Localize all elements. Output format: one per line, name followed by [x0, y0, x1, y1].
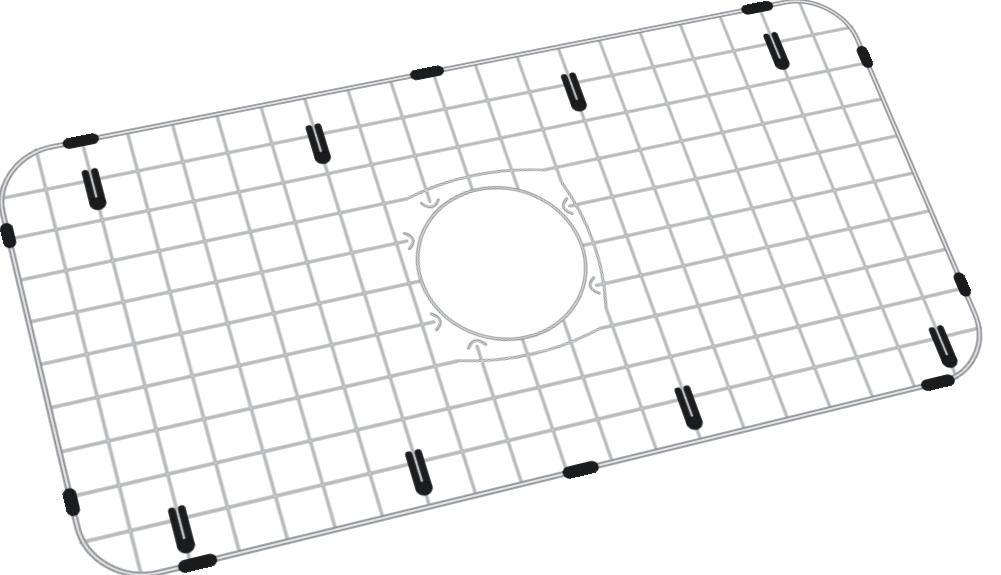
edge-bumper [177, 553, 218, 574]
sink-grid [0, 0, 998, 575]
edge-bumper [952, 272, 972, 298]
sink-grid-svg [0, 0, 998, 575]
edge-bumper [62, 133, 100, 150]
edge-bumper [920, 374, 956, 392]
outer-frame-highlight [0, 0, 998, 575]
edge-bumper [740, 0, 774, 15]
product-photo-stage [0, 0, 1001, 575]
edge-bumper [409, 65, 445, 81]
edge-bumper [0, 222, 17, 248]
edge-bumper [561, 460, 599, 479]
edge-bumper [62, 487, 81, 517]
